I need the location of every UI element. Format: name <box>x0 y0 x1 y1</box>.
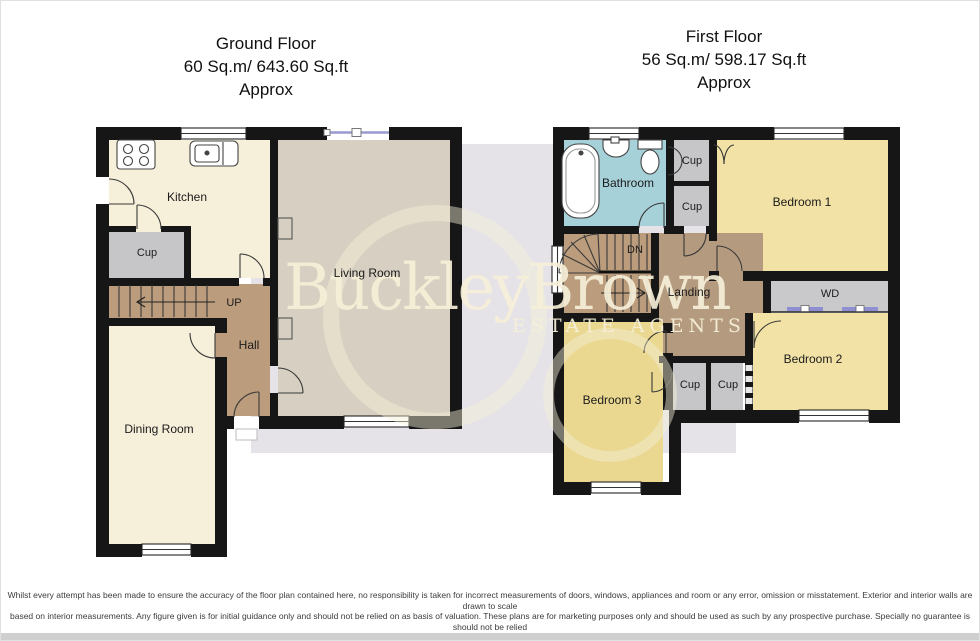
room-label-bedroom-1: Bedroom 1 <box>773 195 832 209</box>
wall <box>763 273 771 313</box>
disclaimer-line-2: based on interior measurements. Any figu… <box>1 611 979 632</box>
bottom-border <box>1 633 979 640</box>
room-label-stairs-up: UP <box>226 297 241 309</box>
wall <box>96 278 239 286</box>
first-floor-title-line1: First Floor <box>579 25 869 48</box>
window-bedroom1-top <box>774 128 844 139</box>
room-label-wardrobe: WD <box>821 288 839 300</box>
room-label-living: Living Room <box>334 266 401 280</box>
room-label-cupboard-top-1: Cup <box>682 155 702 167</box>
wall <box>191 544 227 557</box>
wall <box>270 393 278 416</box>
wall <box>215 357 227 544</box>
ground-floor-title-line1: Ground Floor <box>121 32 411 55</box>
wall <box>659 356 753 363</box>
wall <box>215 318 227 333</box>
room-label-bedroom-2: Bedroom 2 <box>784 352 843 366</box>
wall <box>96 318 215 326</box>
room-label-hall: Hall <box>239 338 260 352</box>
wall <box>641 482 681 495</box>
wall <box>664 226 684 234</box>
wall <box>184 226 191 284</box>
wall <box>639 127 774 140</box>
room-label-cupboard-bottom-1: Cup <box>680 379 700 391</box>
room-label-stairs-down: DN <box>627 244 643 256</box>
wall <box>96 226 136 232</box>
room-label-kitchen: Kitchen <box>167 190 207 204</box>
first-floor-title-line2: 56 Sq.m/ 598.17 Sq.ft <box>579 48 869 71</box>
disclaimer-line-1: Whilst every attempt has been made to en… <box>1 590 979 611</box>
wall <box>869 410 900 423</box>
stairs-up-area <box>109 284 215 318</box>
wall <box>259 416 344 429</box>
wall <box>270 140 278 366</box>
watermark-brand: BuckleyBrown <box>284 251 730 325</box>
wall <box>663 353 673 410</box>
ground-floor-title: Ground Floor 60 Sq.m/ 643.60 Sq.ft Appro… <box>121 32 411 101</box>
room-label-cupboard-ground: Cup <box>137 247 157 259</box>
window-bedroom3-bottom <box>591 482 641 493</box>
wall <box>96 544 142 557</box>
room-label-bedroom-3: Bedroom 3 <box>583 393 642 407</box>
wall <box>673 410 799 423</box>
wall <box>409 416 462 429</box>
room-label-dining: Dining Room <box>124 422 193 436</box>
room-label-landing: Landing <box>668 285 711 299</box>
window-kitchen-top <box>181 128 246 139</box>
first-floor-title-line3: Approx <box>579 71 869 94</box>
window-dining-bottom <box>142 544 191 555</box>
window-living-top <box>324 129 389 137</box>
watermark-tagline: ESTATE AGENTS <box>512 315 746 337</box>
room-label-bathroom: Bathroom <box>602 176 654 190</box>
wall <box>709 127 717 241</box>
wall <box>666 127 674 226</box>
wall <box>553 482 591 495</box>
wall <box>706 363 711 410</box>
ground-floor-title-line3: Approx <box>121 78 411 101</box>
room-label-cupboard-top-2: Cup <box>682 201 702 213</box>
wall <box>96 127 109 177</box>
room-label-cupboard-bottom-2: Cup <box>718 379 738 391</box>
window-bedroom2-bottom <box>799 410 869 421</box>
first-floor-title: First Floor 56 Sq.m/ 598.17 Sq.ft Approx <box>579 25 869 94</box>
wall <box>553 226 639 234</box>
ground-floor-title-line2: 60 Sq.m/ 643.60 Sq.ft <box>121 55 411 78</box>
wall <box>246 127 327 140</box>
window-bathroom-top <box>589 128 639 139</box>
door-opening-kitchen-side <box>96 177 109 204</box>
wall <box>96 204 109 557</box>
floorplan-page: Ground Floor 60 Sq.m/ 643.60 Sq.ft Appro… <box>0 0 980 641</box>
